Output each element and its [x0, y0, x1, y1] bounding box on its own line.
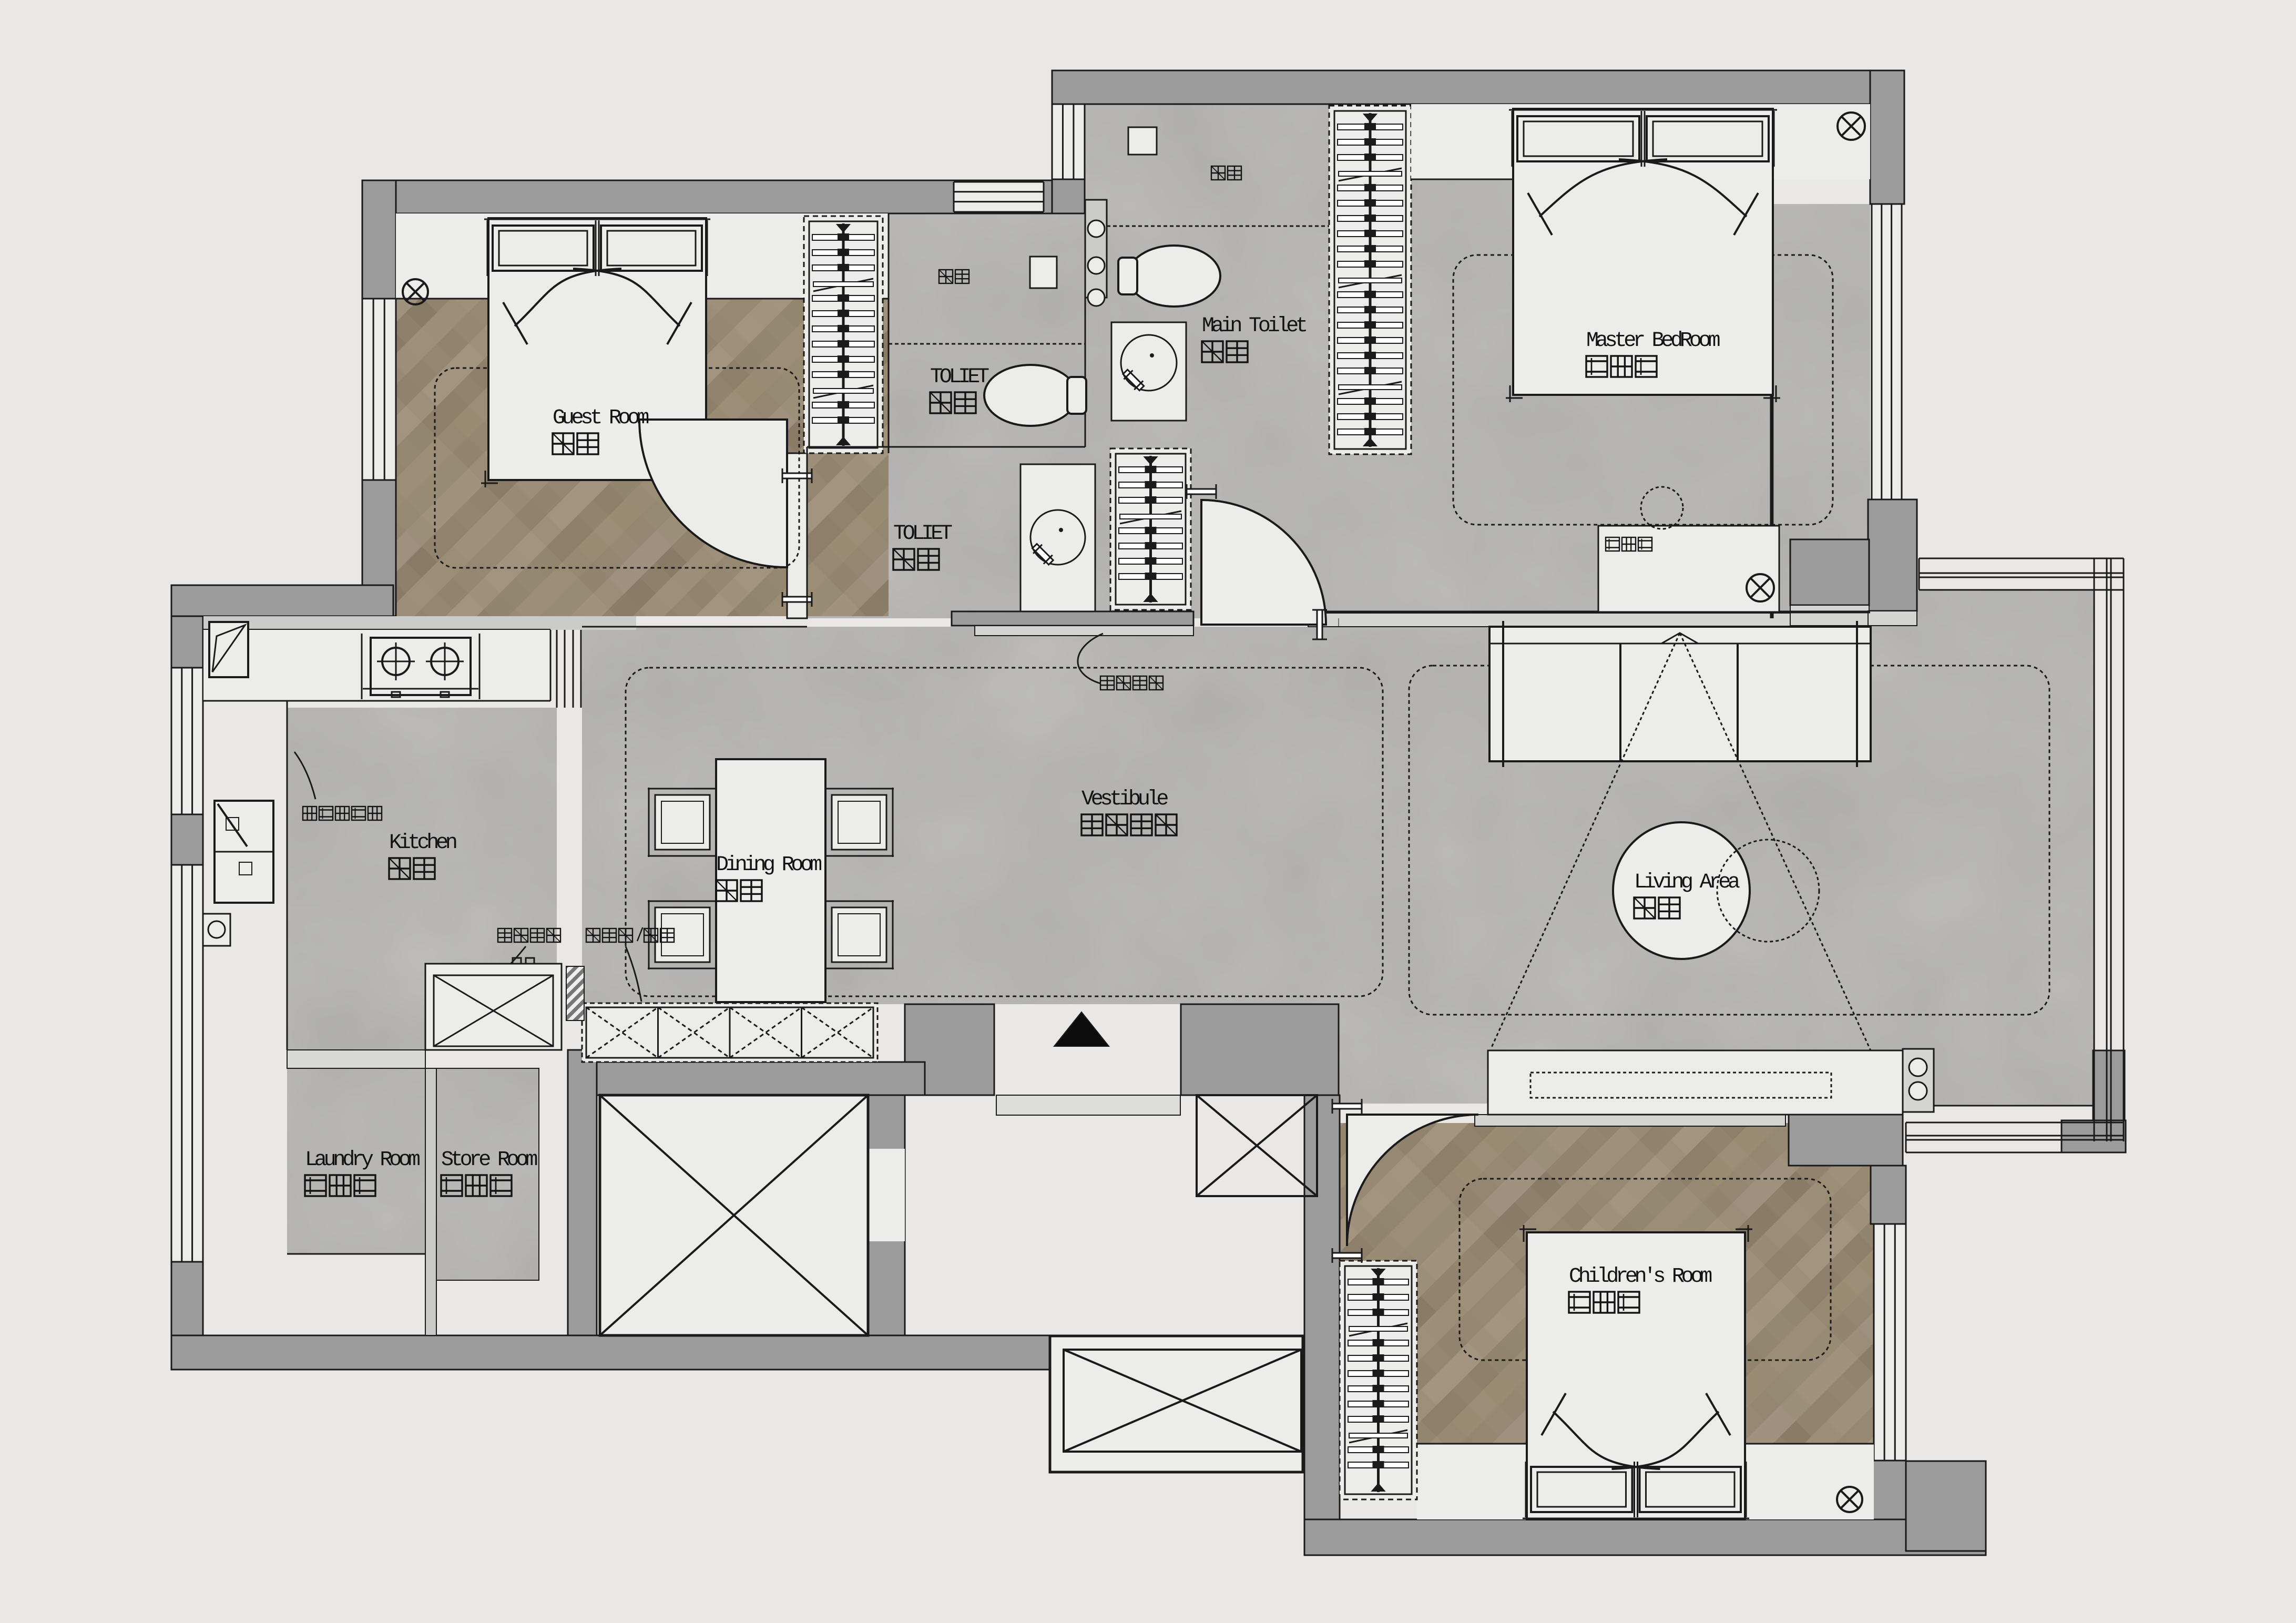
svg-text:Living Area: Living Area — [1634, 871, 1740, 894]
svg-text:Main Toilet: Main Toilet — [1202, 314, 1306, 338]
svg-text:Master BedRoom: Master BedRoom — [1586, 329, 1719, 353]
svg-text:TOLIET: TOLIET — [893, 522, 952, 546]
svg-text:Vestibule: Vestibule — [1081, 788, 1168, 811]
svg-text:Guest Room: Guest Room — [553, 406, 648, 430]
svg-text:Store Room: Store Room — [441, 1148, 537, 1172]
svg-text:TOLIET: TOLIET — [930, 365, 989, 389]
svg-text:Dining Room: Dining Room — [716, 853, 821, 877]
svg-text:Laundry Room: Laundry Room — [305, 1148, 420, 1172]
svg-text:Children's Room: Children's Room — [1569, 1265, 1711, 1289]
svg-text:Kitchen: Kitchen — [389, 831, 456, 855]
